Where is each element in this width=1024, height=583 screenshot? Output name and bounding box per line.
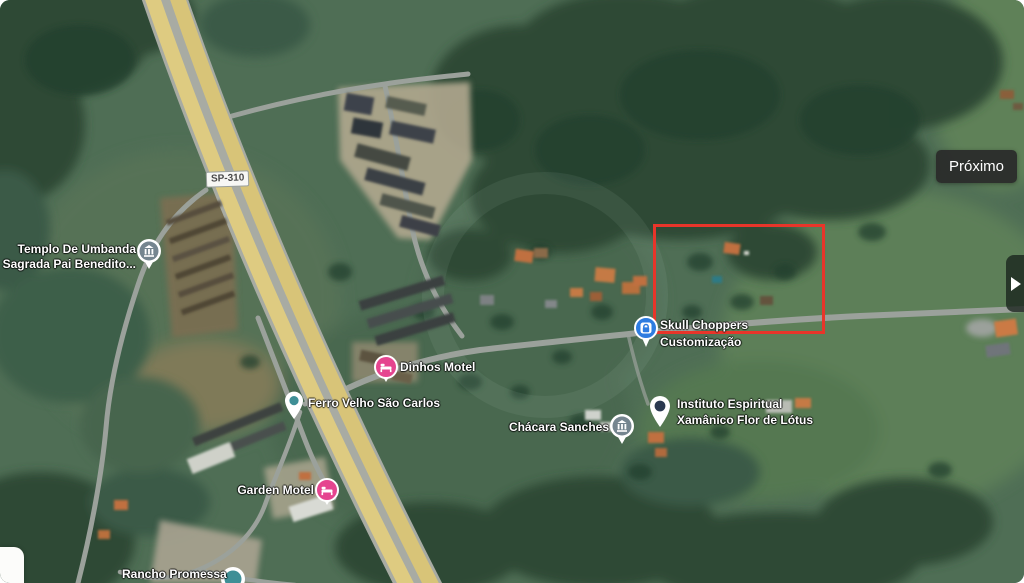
poi-name: Templo De Umbanda [3,242,136,257]
route-badge-sp310: SP-310 [206,170,250,188]
poi-name: Instituto Espiritual [677,396,813,412]
listing-photo-carousel: SP-310 Templo De Umbanda Sagrada Pai Ben… [0,0,1024,583]
map-label-dinhos[interactable]: Dinhos Motel [400,360,475,375]
poi-name: Ferro Velho São Carlos [308,396,440,411]
poi-name: Skull Choppers [660,317,748,334]
chevron-right-icon [1011,277,1021,291]
poi-name: Customização [660,334,748,351]
map-label-ferro[interactable]: Ferro Velho São Carlos [308,396,440,411]
corner-card-fragment[interactable] [0,547,24,583]
poi-name: Garden Motel [237,483,314,498]
satellite-map[interactable]: SP-310 Templo De Umbanda Sagrada Pai Ben… [0,0,1024,583]
poi-name: Sagrada Pai Benedito... [3,257,136,272]
next-photo-button[interactable]: Próximo [936,150,1017,183]
poi-name: Dinhos Motel [400,360,475,375]
map-label-garden[interactable]: Garden Motel [237,483,314,498]
map-label-chacara[interactable]: Chácara Sanches [509,420,609,435]
poi-name: Xamânico Flor de Lótus [677,412,813,428]
poi-name: Chácara Sanches [509,420,609,435]
map-label-rancho[interactable]: Rancho Promessa [122,567,227,582]
carousel-next-arrow[interactable] [1006,255,1024,312]
map-label-skull[interactable]: Skull Choppers Customização [660,317,748,351]
map-label-instituto[interactable]: Instituto Espiritual Xamânico Flor de Ló… [677,396,813,428]
satellite-imagery [0,0,1024,583]
map-label-templo[interactable]: Templo De Umbanda Sagrada Pai Benedito..… [3,242,136,272]
poi-name: Rancho Promessa [122,567,227,582]
